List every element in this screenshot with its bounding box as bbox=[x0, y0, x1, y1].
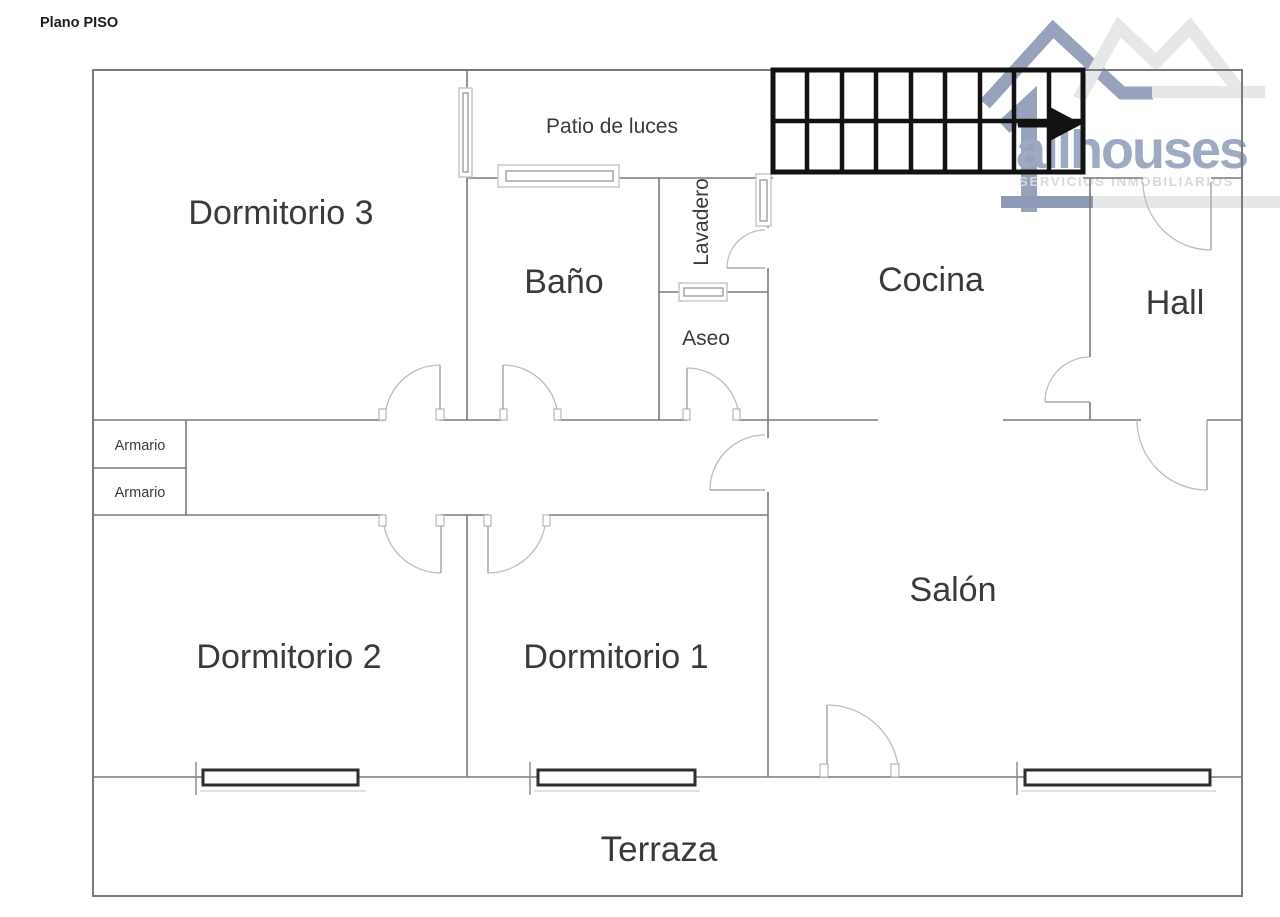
door-jambs bbox=[379, 409, 899, 777]
door-arc-bano bbox=[503, 365, 558, 420]
doors bbox=[379, 182, 1211, 777]
door-arcs bbox=[383, 182, 1211, 777]
room-label-hall: Hall bbox=[1146, 284, 1205, 322]
door-arc-hall-entrance bbox=[1143, 182, 1211, 250]
room-label-dormitorio-3: Dormitorio 3 bbox=[188, 194, 373, 232]
door-jamb bbox=[733, 409, 740, 420]
window-patio-horizontal-inner bbox=[506, 171, 613, 181]
door-arc-dormitorio-2 bbox=[383, 515, 441, 573]
room-label-bano: Baño bbox=[524, 263, 603, 301]
room-label-dormitorio-1: Dormitorio 1 bbox=[523, 638, 708, 676]
room-label-patio-de-luces: Patio de luces bbox=[546, 115, 678, 138]
logo-baseline-light bbox=[1093, 196, 1280, 208]
door-arc-aseo bbox=[687, 368, 739, 420]
logo-tagline-text: SERVICIOS INMOBILIARIOS bbox=[1019, 174, 1234, 189]
closet-label-1: Armario bbox=[115, 438, 166, 454]
window-aseo-inner bbox=[684, 288, 723, 296]
door-jamb bbox=[436, 409, 444, 420]
door-arc-dormitorio-3 bbox=[385, 365, 440, 420]
door-jamb bbox=[379, 515, 386, 526]
page-title: Plano PISO bbox=[40, 15, 118, 31]
window-patio-vertical-inner bbox=[463, 93, 468, 172]
floor-plan-page: allhouses SERVICIOS INMOBILIARIOS Plano … bbox=[0, 0, 1280, 917]
door-arc-corridor-salon bbox=[710, 435, 765, 490]
window-lavadero-inner bbox=[760, 180, 767, 221]
door-jamb bbox=[820, 764, 828, 777]
door-arc-terraza bbox=[827, 705, 899, 777]
room-label-dormitorio-2: Dormitorio 2 bbox=[196, 638, 381, 676]
door-jamb bbox=[484, 515, 491, 526]
window-dormitorio-2 bbox=[203, 770, 358, 785]
logo-roof-light-bar bbox=[1152, 86, 1265, 98]
door-arc-lavadero bbox=[727, 230, 765, 268]
window-dormitorio-1 bbox=[538, 770, 695, 785]
logo-baseline-dark bbox=[1001, 196, 1093, 208]
door-jamb bbox=[436, 515, 444, 526]
door-jamb bbox=[379, 409, 386, 420]
door-jamb bbox=[891, 764, 899, 777]
room-label-salon: Salón bbox=[910, 571, 997, 609]
door-jamb bbox=[554, 409, 561, 420]
room-label-terraza: Terraza bbox=[601, 830, 718, 869]
room-label-aseo: Aseo bbox=[682, 327, 730, 350]
door-jamb bbox=[543, 515, 550, 526]
door-jamb bbox=[500, 409, 507, 420]
door-jamb bbox=[683, 409, 690, 420]
floor-plan-canvas: allhouses SERVICIOS INMOBILIARIOS Plano … bbox=[0, 0, 1280, 917]
door-arc-cocina bbox=[1045, 357, 1090, 402]
closet-label-2: Armario bbox=[115, 485, 166, 501]
door-arc-salon bbox=[1137, 420, 1207, 490]
room-label-cocina: Cocina bbox=[878, 261, 984, 299]
room-label-lavadero: Lavadero bbox=[690, 178, 713, 266]
window-salon bbox=[1025, 770, 1210, 785]
door-arc-dormitorio-1 bbox=[488, 515, 546, 573]
